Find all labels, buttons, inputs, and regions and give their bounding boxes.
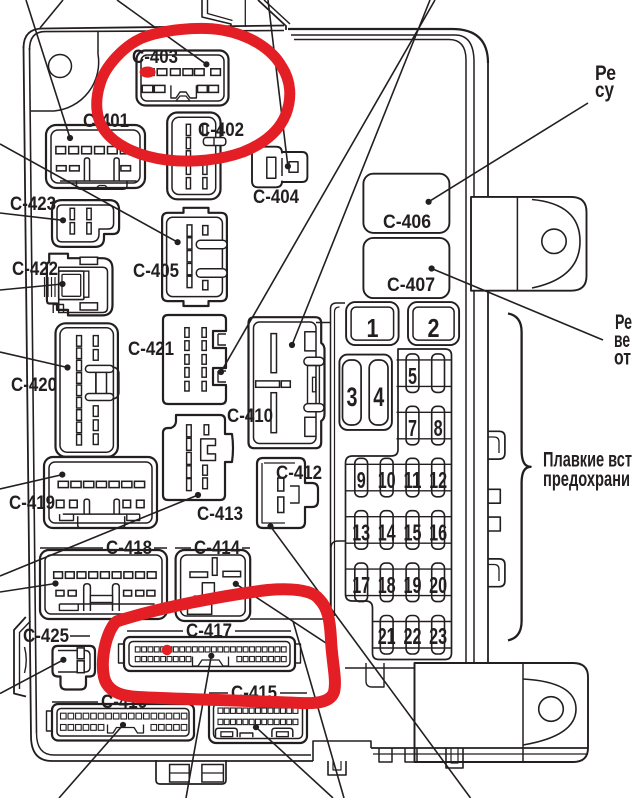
svg-text:22: 22: [404, 623, 422, 649]
svg-text:C-420: C-420: [11, 375, 57, 396]
svg-text:су: су: [595, 79, 614, 102]
svg-text:C-419: C-419: [9, 493, 55, 514]
svg-text:17: 17: [352, 572, 370, 598]
svg-text:10: 10: [378, 467, 396, 493]
svg-text:4: 4: [373, 382, 384, 412]
svg-text:7: 7: [408, 415, 417, 441]
svg-text:C-418: C-418: [106, 538, 152, 559]
svg-text:предохрани: предохрани: [543, 468, 630, 491]
svg-text:C-413: C-413: [197, 504, 243, 525]
svg-text:C-425: C-425: [23, 626, 69, 647]
svg-text:19: 19: [404, 572, 422, 598]
svg-text:C-421: C-421: [128, 339, 174, 360]
svg-text:20: 20: [429, 572, 447, 598]
svg-text:16: 16: [429, 520, 447, 546]
svg-text:C-410: C-410: [227, 406, 273, 427]
svg-text:3: 3: [347, 382, 358, 412]
svg-text:8: 8: [434, 415, 443, 441]
svg-text:2: 2: [428, 313, 440, 343]
svg-text:C-406: C-406: [383, 212, 431, 233]
svg-text:C-403: C-403: [132, 47, 178, 68]
svg-text:12: 12: [429, 467, 447, 493]
svg-text:C-422: C-422: [12, 259, 58, 280]
svg-text:C-407: C-407: [387, 275, 435, 296]
svg-text:C-405: C-405: [133, 261, 179, 282]
svg-text:C-412: C-412: [276, 463, 322, 484]
svg-text:5: 5: [408, 363, 417, 389]
svg-text:11: 11: [404, 467, 422, 493]
svg-text:18: 18: [378, 572, 396, 598]
svg-text:1: 1: [367, 313, 379, 343]
svg-text:23: 23: [429, 623, 447, 649]
svg-text:от: от: [614, 347, 631, 370]
svg-text:14: 14: [378, 520, 396, 546]
svg-text:C-423: C-423: [10, 194, 56, 215]
svg-text:9: 9: [357, 467, 366, 493]
svg-text:C-414: C-414: [194, 538, 240, 559]
svg-text:15: 15: [404, 520, 422, 546]
svg-text:C-402: C-402: [198, 120, 244, 141]
svg-text:13: 13: [352, 520, 370, 546]
svg-text:21: 21: [378, 623, 396, 649]
svg-text:C-404: C-404: [253, 187, 299, 208]
svg-text:C-417: C-417: [186, 621, 232, 642]
